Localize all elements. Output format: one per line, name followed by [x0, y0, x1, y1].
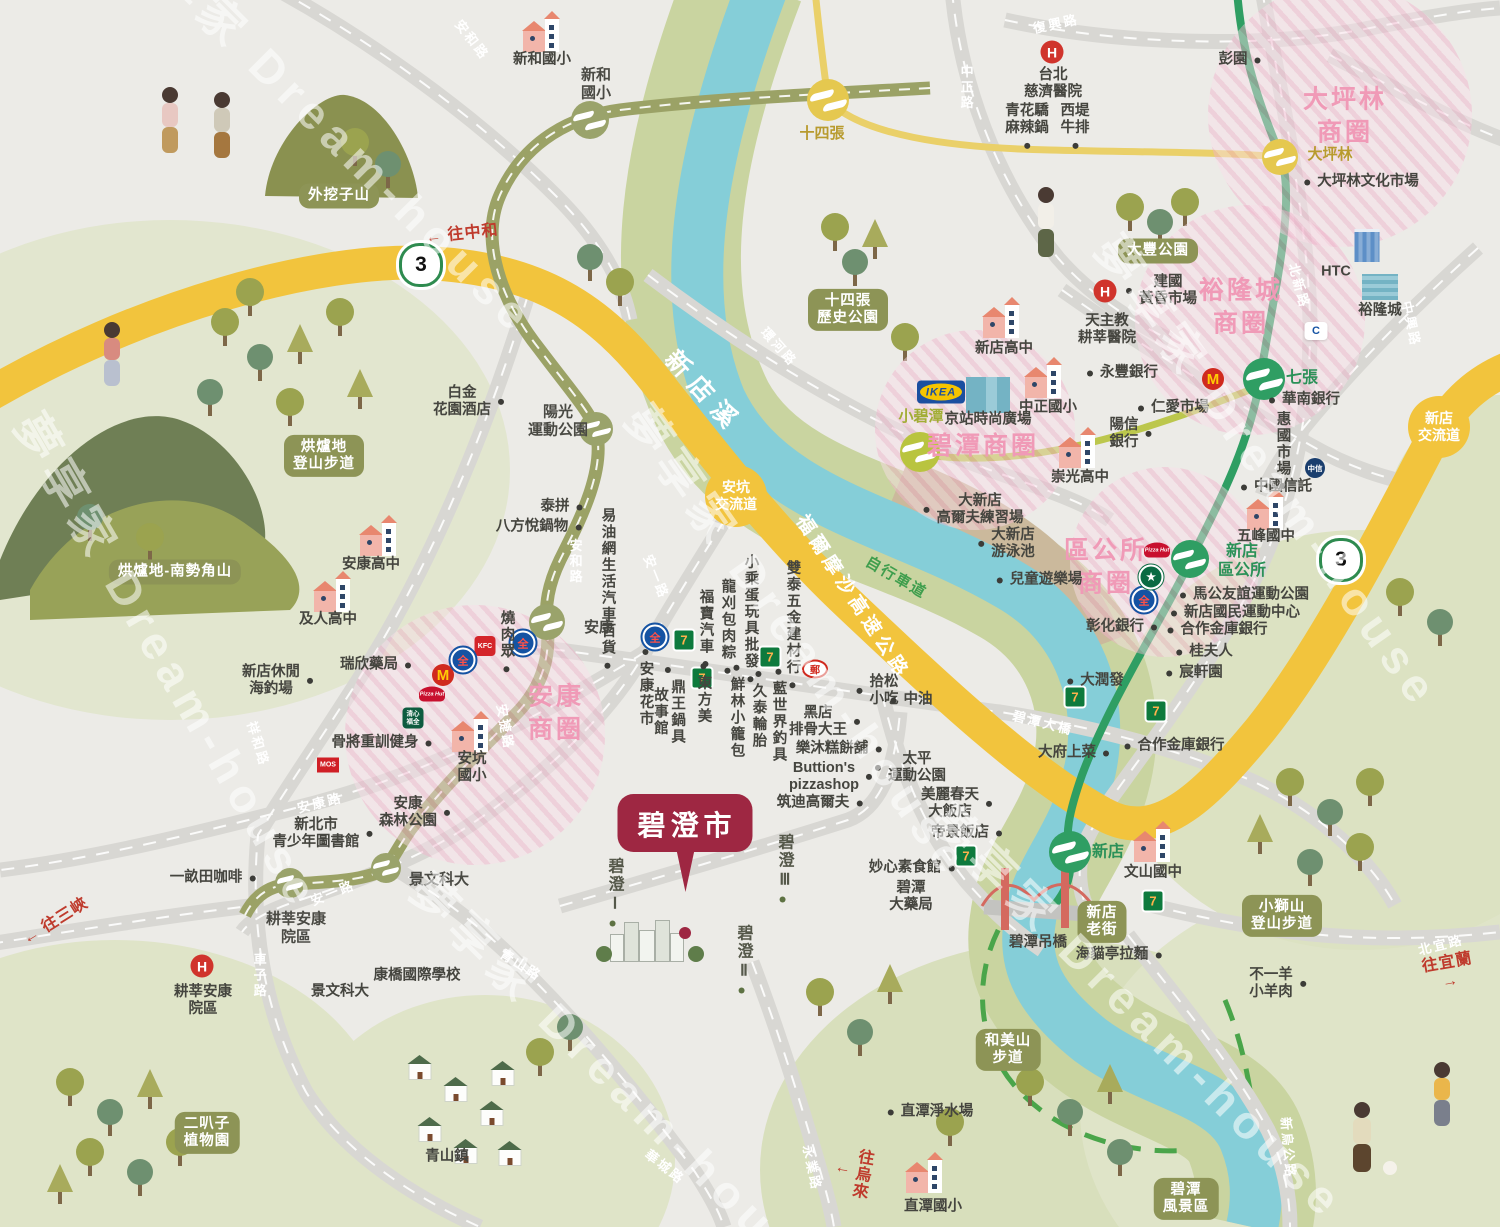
label-poi: 仁愛市場	[1151, 399, 1209, 416]
label-poi: 天主教 耕莘醫院	[1078, 313, 1136, 347]
poi-dot	[891, 697, 897, 703]
poi-dot	[1125, 743, 1131, 749]
building-part	[523, 31, 545, 52]
poi-dot	[1171, 610, 1177, 616]
label-poi: 五峰國中	[1237, 528, 1295, 545]
project-pin	[679, 927, 691, 939]
poi-dot	[1067, 678, 1073, 684]
label-poi: 桂夫人	[1189, 643, 1233, 660]
label-poi: 馬公友誼運動公園	[1193, 586, 1309, 603]
project-name: 碧澄市	[637, 810, 736, 841]
metro-swoosh-icon	[542, 621, 564, 632]
label-poi: 龍刈包肉粽	[718, 579, 735, 662]
station-district-office	[1171, 540, 1209, 578]
poi-dot	[1176, 649, 1182, 655]
poi-dot	[503, 666, 509, 672]
label-poi: 中國信託	[1254, 478, 1312, 495]
qingshan-house	[445, 1085, 468, 1102]
poi-dot	[604, 662, 610, 668]
seven-logo: 7	[1145, 700, 1168, 723]
highway-3-badge: 3	[399, 243, 443, 287]
qingshan-house	[419, 1125, 442, 1142]
label-phase: 碧澄Ⅲ	[774, 834, 793, 891]
label-poi: 帝景飯店	[931, 824, 989, 841]
label-road: 車子路	[251, 953, 266, 1000]
label-poi: 京站時尚廣場	[945, 411, 1032, 428]
poi-dot	[1151, 624, 1157, 630]
interchange-xindian: 新店 交流道	[1408, 396, 1470, 458]
label-pink: 區公所 商圈	[1064, 535, 1148, 600]
label-poi: 白金 花園酒店	[433, 385, 491, 419]
station-dapinglin	[1262, 139, 1298, 175]
label-poi: 中油	[904, 691, 933, 708]
label-poi: 大府上菜	[1038, 744, 1096, 761]
poi-dot	[1155, 952, 1161, 958]
label-poi: 文山國中	[1124, 864, 1182, 881]
label-poi: 不一羊 小羊肉	[1249, 967, 1293, 1001]
xindian-high-building	[983, 292, 1021, 338]
tower	[655, 920, 670, 962]
label-poi: 耕莘安康 院區	[174, 984, 232, 1018]
label-olive: 新店 老街	[1078, 901, 1127, 943]
poi-dot	[642, 649, 648, 655]
poi-dot	[249, 875, 255, 881]
qingshan-house	[481, 1109, 504, 1126]
building-part	[1025, 377, 1047, 398]
label-poi: 及人高中	[299, 611, 357, 628]
label-poi: 八方悅鍋物	[496, 518, 569, 535]
label-poi: 兒童遊樂場	[1010, 571, 1083, 588]
label-road: 中正路	[958, 65, 973, 112]
tower	[639, 930, 655, 962]
label-poi: 建國 黃昏市場	[1139, 274, 1197, 308]
building-part	[1134, 841, 1156, 862]
bicheng-project-buildings	[610, 916, 694, 962]
poi-dot	[948, 865, 954, 871]
label-sto: 景文科大	[409, 871, 469, 889]
metro-swoosh-icon	[1051, 841, 1076, 854]
label-stg: 七張	[1286, 370, 1318, 389]
label-poi: 安康高中	[342, 556, 400, 573]
metro-swoosh-icon	[1275, 156, 1297, 167]
px-logo: 全	[451, 648, 476, 673]
building-part	[1081, 435, 1095, 468]
station-shisizhang	[807, 79, 849, 121]
qsquare-building	[966, 377, 1010, 413]
station-qizhang	[1243, 358, 1285, 400]
label-sty: 十四張	[799, 125, 844, 143]
building-part	[1059, 447, 1081, 468]
poi-dot	[1255, 57, 1261, 63]
label-poi: 瑞欣藥局	[340, 656, 398, 673]
poi-dot	[1241, 484, 1247, 490]
metro-swoosh-icon	[902, 441, 926, 454]
metro-swoosh-icon	[1245, 368, 1270, 381]
metro-swoosh-icon	[286, 882, 304, 891]
poi-dot	[775, 669, 781, 675]
label-olive: 烘爐地-南勢角山	[109, 559, 241, 584]
station-ankang	[529, 604, 565, 640]
poi-dot	[1304, 179, 1310, 185]
poi-dot	[733, 665, 739, 671]
zhongzheng-elementary-building	[1025, 352, 1063, 398]
metro-swoosh-icon	[276, 875, 294, 884]
label-poi: 藍世界釣具	[769, 681, 786, 764]
label-poi: 崇光高中	[1051, 469, 1109, 486]
label-poi: 太平 運動公園	[888, 751, 946, 785]
carrefour-logo: C	[1305, 322, 1328, 340]
label-poi: 黑店 排骨大王	[789, 705, 847, 739]
ctbc-logo: 中信	[1305, 458, 1325, 478]
poi-dot	[856, 800, 862, 806]
zhitan-elementary-building	[906, 1147, 944, 1193]
label-poi: 新和國小	[513, 51, 571, 68]
label-poi: 安坑 國小	[458, 751, 487, 785]
label-sto: 耕莘安康 院區	[266, 910, 326, 945]
station-xindian	[1049, 831, 1091, 873]
label-olive: 外挖子山	[299, 183, 379, 208]
label-poi: Buttion's pizzashop	[789, 760, 859, 794]
label-poi: 安康花市	[636, 661, 653, 727]
label-poi: 一畝田咖啡	[170, 869, 243, 886]
label-poi: 華南銀行	[1282, 391, 1340, 408]
label-poi: 新店高中	[975, 340, 1033, 357]
qingshan-house	[409, 1063, 432, 1080]
project-callout: 碧澄市	[617, 794, 752, 852]
building-part	[382, 523, 396, 556]
label-poi: 福寶汽車	[696, 589, 713, 655]
metro-swoosh-icon	[1258, 377, 1283, 390]
label-poi: 美麗春天 大飯店	[921, 787, 979, 821]
poi-dot	[1180, 592, 1186, 598]
tower	[624, 922, 639, 962]
poi-dot	[997, 577, 1003, 583]
metro-swoosh-icon	[1185, 558, 1208, 570]
label-poi: 宸軒園	[1179, 664, 1223, 681]
metro-swoosh-icon	[809, 89, 834, 102]
label-stg: 新店	[1092, 844, 1124, 863]
wenshan-junior-building	[1134, 816, 1172, 862]
label-poi: 大潤發	[1080, 672, 1124, 689]
label-poi: 東方美	[694, 675, 711, 725]
poi-dot	[888, 1109, 894, 1115]
metro-swoosh-icon	[822, 98, 847, 111]
interchange-ankeng: 安坑 交流道	[705, 465, 767, 527]
label-stg: 新店 區公所	[1218, 543, 1266, 581]
building-part	[1005, 305, 1019, 338]
poi-dot	[789, 682, 795, 688]
label-poi: 台北 慈濟醫院	[1024, 67, 1082, 101]
poi-dot	[700, 663, 706, 669]
building-part	[1047, 365, 1061, 398]
label-phase: 碧澄Ⅱ	[733, 925, 752, 982]
label-poi: 新北市 青少年圖書館	[273, 817, 360, 851]
building-part	[1156, 829, 1170, 862]
label-poi: 裕隆城	[1358, 302, 1402, 319]
label-poi: 康橋國際學校	[374, 967, 461, 984]
label-poi: 久泰輪胎	[749, 683, 766, 749]
metro-swoosh-icon	[1263, 147, 1285, 158]
seven-logo: 7	[759, 646, 782, 669]
poi-dot	[1138, 405, 1144, 411]
label-phase: 碧澄Ⅰ	[604, 858, 623, 915]
hospital-logo: H	[191, 955, 214, 978]
label-poi: 鼎王鍋具 故事館	[651, 679, 685, 745]
label-poi: 燒肉眾	[497, 610, 514, 660]
station-xinhe-elementary	[571, 101, 609, 139]
station-jinwen-univ	[371, 853, 401, 883]
building-part	[360, 535, 382, 556]
label-poi: 妙心素食館	[869, 859, 942, 876]
label-pink: 裕隆城 商圈	[1199, 275, 1283, 340]
label-olive: 十四張 歷史公園	[808, 289, 888, 331]
poi-dot	[1300, 981, 1306, 987]
seven-logo: 7	[1142, 890, 1165, 913]
metro-swoosh-icon	[585, 119, 608, 131]
px-logo: 全	[643, 625, 668, 650]
poi-dot	[575, 524, 581, 530]
poi-dot	[405, 662, 411, 668]
label-poi: HTC	[1321, 263, 1351, 280]
label-poi: 大新店 游泳池	[991, 527, 1035, 561]
poi-dot	[747, 676, 753, 682]
tea-logo: 清心 福全	[403, 708, 424, 729]
label-poi: 骨將重訓健身	[332, 734, 419, 751]
label-olive: 大豐公園	[1118, 238, 1198, 263]
metro-swoosh-icon	[591, 428, 611, 439]
hospital-logo: H	[1094, 280, 1117, 303]
label-poi: 碧潭吊橋	[1009, 934, 1067, 951]
tree-icon	[596, 946, 612, 962]
xinhe-elementary-building	[523, 6, 561, 52]
label-poi: 陽信 銀行	[1110, 417, 1139, 451]
chongguang-high-building	[1059, 422, 1097, 468]
building-part	[1247, 509, 1269, 530]
tree-icon	[688, 946, 704, 962]
mcd-logo: M	[432, 664, 454, 686]
label-olive: 和美山 步道	[976, 1029, 1041, 1071]
label-poi: 雙泰五金建材行	[783, 560, 800, 676]
illustrated-area-map: 碧澄市 安和路中正路復興路環河路北新路中興路祥和路安康路車子路安一路安一路安捷路…	[0, 0, 1500, 1227]
label-sto: 陽光 運動公園	[528, 403, 588, 438]
metro-swoosh-icon	[572, 110, 595, 122]
poi-dot	[755, 671, 761, 677]
label-sto: 新和 國小	[581, 66, 611, 101]
poi-dot	[1168, 627, 1174, 633]
mos-logo: MOS	[317, 758, 339, 773]
qingshan-house	[499, 1149, 522, 1166]
label-poi: 合作金庫銀行	[1138, 737, 1225, 754]
building-part	[336, 579, 350, 612]
hospital-logo: H	[1041, 41, 1064, 64]
label-poi: 彰化銀行	[1086, 618, 1144, 635]
building-part	[474, 719, 488, 752]
label-pink: 大坪林 商圈	[1303, 84, 1387, 149]
poi-dot	[1103, 750, 1109, 756]
pizzahut-logo: Pizza Hut	[419, 687, 445, 702]
metro-swoosh-icon	[1172, 549, 1195, 561]
label-poi: 鮮林小籠包	[727, 677, 744, 760]
poi-dot	[1269, 397, 1275, 403]
label-poi: 合作金庫銀行	[1181, 621, 1268, 638]
poi-dot	[577, 504, 583, 510]
label-pink: 碧潭商圈	[927, 430, 1039, 463]
label-poi: 大新店 高爾夫練習場	[937, 493, 1024, 527]
label-poi: 直潭淨水場	[901, 1103, 974, 1120]
ikea-logo: IKEA	[917, 381, 965, 404]
poi-dot	[1024, 143, 1030, 149]
building-part	[545, 19, 559, 52]
label-poi: 直潭國小	[904, 1198, 962, 1215]
poi-dot	[724, 667, 730, 673]
label-poi: 大坪林文化市場	[1317, 173, 1419, 190]
poi-dot	[1166, 670, 1172, 676]
label-poi: 小乘蛋玩具批發	[741, 554, 758, 670]
label-poi: 彭園	[1219, 51, 1248, 68]
kfc-logo: KFC	[475, 636, 496, 656]
label-olive: 碧潭 風景區	[1154, 1178, 1219, 1220]
label-stl: 小碧潭	[898, 408, 943, 426]
label-pink: 安康 商圈	[528, 681, 584, 746]
label-poi: 惠國市場	[1273, 411, 1290, 477]
label-olive: 二叭子 植物園	[175, 1112, 240, 1154]
label-poi: 泰拼	[541, 498, 570, 515]
tower	[610, 934, 624, 962]
metro-swoosh-icon	[382, 867, 400, 876]
label-poi: 新店休閒 海釣場	[242, 664, 300, 698]
poi-dot	[996, 830, 1002, 836]
label-poi: 安康 森林公園	[379, 796, 437, 830]
building-part	[906, 1172, 928, 1193]
label-poi: 景文科大	[311, 983, 369, 1000]
qingshan-house	[492, 1069, 515, 1086]
metro-swoosh-icon	[1064, 850, 1089, 863]
ikea-wordmark: IKEA	[920, 384, 962, 401]
highway-3-badge: 3	[1319, 538, 1363, 582]
station-gengxin-ankang	[275, 868, 305, 898]
building-part	[983, 317, 1005, 338]
poi-dot	[1087, 370, 1093, 376]
post-logo: 郵	[802, 660, 828, 679]
label-poi: 永豐銀行	[1100, 364, 1158, 381]
building-part	[452, 731, 474, 752]
building-part	[928, 1160, 942, 1193]
seven-logo: 7	[955, 845, 978, 868]
poi-dot	[426, 740, 432, 746]
building-part	[314, 591, 336, 612]
ankeng-elementary-building	[452, 706, 490, 752]
htc-building	[1355, 229, 1380, 262]
poi-dot	[875, 746, 881, 752]
label-olive: 小獅山 登山步道	[1242, 895, 1322, 937]
ankang-high-building	[360, 510, 398, 556]
label-poi: 青花驕 麻辣鍋	[1005, 103, 1049, 137]
label-poi: 筑迪高爾夫	[777, 794, 850, 811]
label-poi: 碧潭 大藥局	[889, 880, 933, 914]
label-road: 安和路	[567, 539, 582, 586]
label-poi: 西堤 牛排	[1061, 103, 1090, 137]
metro-swoosh-icon	[530, 612, 552, 623]
label-poi: 新店國民運動中心	[1184, 604, 1300, 621]
label-poi: 青山鎮	[425, 1148, 469, 1165]
label-poi: 樂沐糕餅舖	[796, 740, 869, 757]
label-poi: 海貓亭拉麵	[1076, 946, 1149, 963]
poi-dot	[1072, 143, 1078, 149]
mcd-logo: M	[1202, 368, 1224, 390]
label-sty: 大坪林	[1307, 146, 1352, 164]
metro-swoosh-icon	[372, 860, 390, 869]
label-olive: 烘爐地 登山步道	[284, 435, 364, 477]
seven-logo: 7	[673, 629, 696, 652]
label-poi: 易油網生活汽車百貨	[598, 508, 615, 657]
building-part	[1269, 497, 1283, 530]
yulon-city-building	[1362, 274, 1398, 300]
